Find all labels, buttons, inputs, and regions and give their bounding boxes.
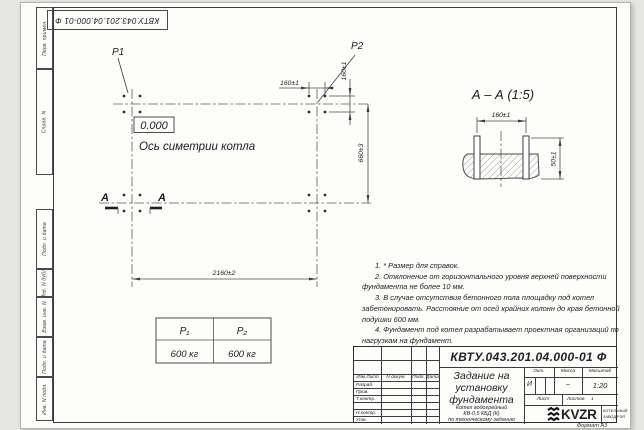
row-label-nkontr: Н.контр.: [356, 411, 376, 416]
col-header-izm-list: Изм.Лист: [354, 375, 381, 380]
technical-notes: 1. * Размер для справок. 2. Отклонение о…: [362, 261, 620, 347]
brand-subtitle-2: ЗАВОД РЭП: [603, 415, 625, 420]
scanned-drawing-sheet: { "frame": { "top_stamp": "КВТУ.043.201.…: [0, 0, 644, 430]
brand-name: KVZR: [561, 407, 597, 422]
load-table-value-p1: 600 кг: [171, 349, 199, 360]
dim-row-spacing: 660±3: [358, 104, 369, 203]
note-2: 2. Отклонение от горизонтального уровня …: [362, 272, 620, 293]
section-bolt-right: [523, 136, 529, 179]
dim-text: 50±1: [551, 151, 558, 166]
sheets-value: 1: [591, 397, 594, 402]
col-header-n-dokum: N докум.: [381, 375, 411, 380]
sheet-label: Лист: [524, 397, 562, 402]
elevation-mark: 0.000: [134, 117, 174, 133]
sheets-label: Листов: [567, 397, 584, 402]
document-title: Задание на установку фундамента: [441, 370, 522, 406]
lit-value: И: [524, 381, 535, 388]
row-label-razrab: Разраб.: [356, 383, 373, 388]
plan-view: P1 P2 160±1 160±1: [99, 41, 371, 287]
row-label-tkontr: Т.контр.: [356, 397, 375, 402]
dim-column-spacing: 2160±2: [132, 270, 317, 280]
note-3: 3. В случае отсутствия бетонного пола пл…: [362, 293, 620, 325]
p1-leader-line: [118, 58, 128, 93]
dim-text: 2160±2: [212, 270, 236, 277]
dim-text: 660±3: [358, 143, 365, 162]
section-letter: A: [100, 192, 109, 204]
scale-value: 1:20: [582, 381, 618, 390]
dim-text: 160±1: [341, 61, 348, 80]
dim-text: 160±1: [280, 80, 299, 87]
col-header-podp: Подп.: [411, 375, 426, 380]
format-label: Формат А3: [567, 423, 617, 429]
load-table-header-p2: P₂: [237, 326, 248, 337]
dim-section-bolt-spacing: 160±1: [477, 112, 526, 133]
mass-value: –: [554, 381, 582, 388]
dim-text: 160±1: [492, 112, 511, 119]
p2-label: P2: [351, 41, 364, 52]
p2-leader-line: [318, 55, 355, 102]
load-table-value-p2: 600 кг: [228, 349, 256, 360]
row-label-utv: Утв.: [356, 418, 367, 423]
load-table-header-p1: P₁: [180, 326, 190, 337]
title-block-designation: КВТУ.043.201.04.000-01 Ф: [439, 350, 618, 364]
note-4: 4. Фундамент под котел разрабатывает про…: [362, 325, 620, 346]
section-view: А – А (1:5) 160±1: [463, 87, 564, 187]
p1-label: P1: [112, 47, 124, 58]
kvzr-logo-icon: [547, 407, 560, 422]
dim-bolt-spacing-y: 160±1: [329, 61, 355, 125]
boiler-axis-label: Ось симетрии котла: [139, 141, 255, 153]
elevation-value: 0.000: [140, 120, 168, 132]
document-subtitle-3: по техническому заданию: [439, 417, 524, 424]
anchor-bolts: [123, 95, 327, 213]
section-view-title: А – А (1:5): [471, 87, 534, 102]
title-block: КВТУ.043.201.04.000-01 Ф Изм.Лист N доку…: [353, 346, 617, 423]
drawing-sheet: Перв. примен. Справ. N Подп. и дата Инв.…: [20, 2, 631, 429]
lit-header: Лит.: [524, 369, 554, 374]
scale-header: Масштаб: [582, 369, 618, 374]
section-letter: A: [157, 192, 166, 204]
col-header-data: Дата: [426, 375, 439, 380]
note-1: 1. * Размер для справок.: [362, 261, 620, 272]
mass-header: Масса: [554, 369, 582, 374]
load-table: P₁ P₂ 600 кг 600 кг: [156, 318, 271, 363]
section-bolt-left: [474, 136, 480, 179]
row-label-prov: Пров.: [356, 390, 369, 395]
